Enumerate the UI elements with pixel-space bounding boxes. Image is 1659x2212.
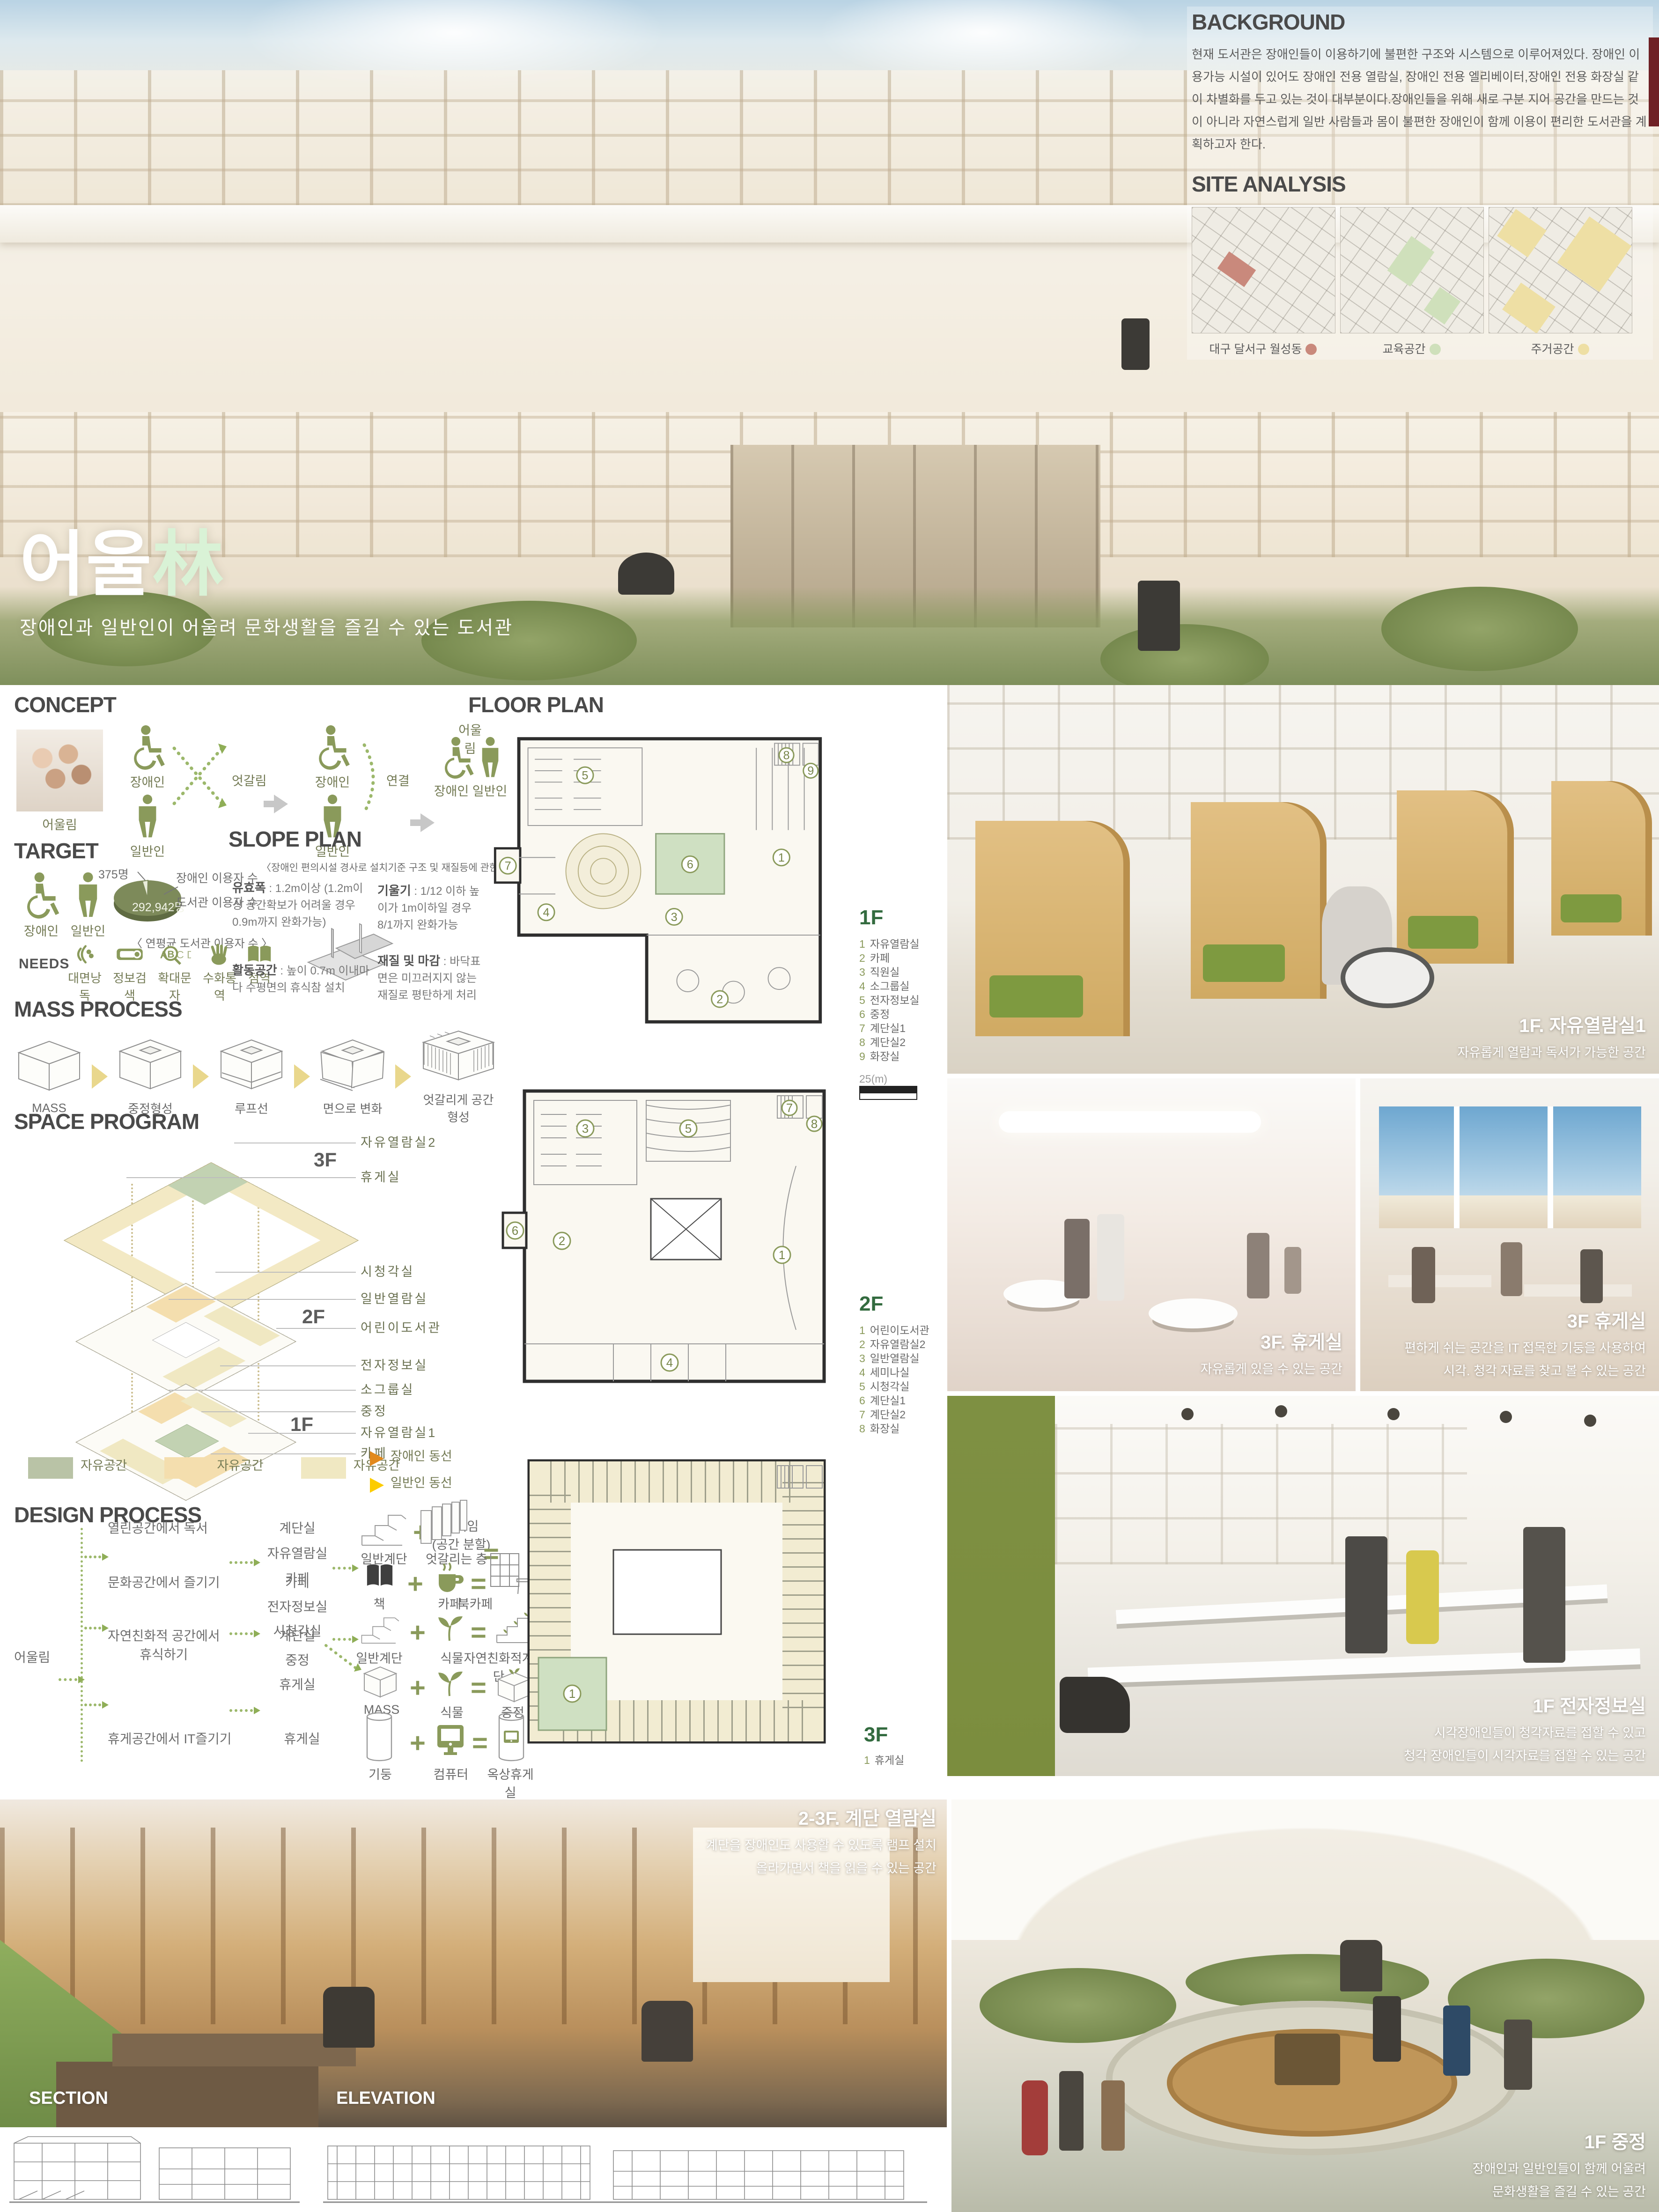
ceiling-light-slot [999,1111,1261,1133]
scale-label: 25(m) [859,1072,920,1086]
room-patch [163,1347,246,1391]
plant-icon [435,1670,465,1698]
svg-text:8: 8 [811,1117,818,1131]
wooden-booth [975,821,1130,1036]
floor-plan-heading: FLOOR PLAN [468,692,604,717]
person-silhouette [1345,1536,1387,1653]
space-legend-row: 자유공간 자유공간 자유공간 [28,1455,400,1479]
person-red [1022,2080,1048,2155]
mass-step: 중정형성 [115,1036,185,1117]
room-patch [181,1393,247,1428]
round-table [1149,1298,1238,1328]
activity-two-line: 자연친화적 공간에서휴식하기 [108,1626,220,1663]
render-stair-reading-room: 2-3F. 계단 열람실 계단을 장애인도 사용할 수 있도록 램프 설치 올라… [0,1799,947,2127]
need-info-search: 정보검색 [108,942,151,1003]
coffee-cup-icon [433,1561,465,1592]
green-swatch [28,1457,73,1479]
page-title: 어울林 [20,529,513,600]
floor2-legend: 2F 1어린이도서관 2자유열람실2 3일반열람실 4세미나실 5시청각실 6계… [859,1292,929,1436]
floor1-plan: 1 2 3 4 5 6 7 8 9 [482,716,852,1044]
legend-item: 8화장실 [859,1422,929,1436]
section-label: SECTION [29,2088,108,2109]
wheelchair-icon [311,725,354,770]
bookshelf-wall [1055,1424,1467,1564]
group-photo [16,730,103,811]
legend-item: 2자유열람실2 [859,1337,929,1351]
target-section: TARGET 장애인 일반인 375명 292,942명 장애인 이용자 수 도… [14,838,234,993]
track-light [1387,1408,1400,1420]
site-map-location: 대구 달서구 월성동 [1192,207,1335,357]
horizon-band [1379,1195,1641,1228]
staggered-shelf-icon [419,1499,475,1551]
map-image [1192,207,1335,333]
floor2-tag: 2F [859,1292,929,1316]
wheelchair-user-silhouette [618,553,674,595]
person-yellow-jacket [1406,1550,1439,1644]
slope-plan-section: SLOPE PLAN 〈장애인 편의시설 경사로 설치기준 구조 및 재질등에 … [229,826,484,995]
legend-item: 2카페 [859,951,920,965]
person-silhouette [1101,2080,1125,2151]
target-disabled: 장애인 [18,872,65,939]
site-patch [1217,251,1256,287]
connect-arc-icon [361,741,383,816]
person-silhouette [1059,2071,1084,2151]
table [1524,1284,1632,1297]
isometric-floor1 [75,1384,296,1501]
design-process-section: DESIGN PROCESS 어울림 열린공간에서 독서 계단실 자유열람실 카… [14,1502,482,1792]
window-mullion [1454,1106,1460,1228]
mass-planes-icon [317,1036,388,1092]
render-caption: 2-3F. 계단 열람실 계단을 장애인도 사용할 수 있도록 램프 설치 올라… [706,1803,936,1876]
dotted-arrow [59,1678,77,1684]
flow-legend: 장애인 동선 일반인 동선 [370,1446,452,1493]
background-body: 현재 도서관은 장애인들이 이용하기에 불편한 구조와 시스템으로 이루어져있다… [1192,43,1648,155]
svg-text:2: 2 [559,1234,565,1248]
dotted-arrow [84,1627,101,1632]
hero-render: 어울林 장애인과 일반인이 어울려 문화생활을 즐길 수 있는 도서관 BACK… [0,0,1659,685]
legend-item: 9화장실 [859,1049,920,1063]
legend-item: 4세미나실 [859,1365,929,1379]
stage-structure [1275,2034,1340,2085]
speech-icon [73,942,97,966]
flow-disabled: 장애인 동선 [370,1446,452,1466]
disabled-label: 장애인 [119,772,176,790]
render-caption: 1F. 자유열람실1 자유롭게 열람과 독서가 가능한 공간 [1457,1010,1646,1061]
stepped-platform [112,2034,356,2066]
needs-label: NEEDS [19,956,69,972]
concept-section: CONCEPT 어울림 장애인 일반인 엇갈림 장애인 일반인 연결 [14,692,482,847]
map-caption: 주거공간 [1489,340,1631,357]
map-image [1340,207,1484,333]
design-root-label: 어울림 [14,1647,50,1666]
title-korean: 어울 [20,525,153,605]
project-subtitle: 장애인과 일반인이 어울려 문화생활을 즐길 수 있는 도서관 [20,612,513,640]
render-caption: 3F 휴게실 편하게 쉬는 공간을 IT 접목한 기둥을 사용하여 시각. 청각… [1404,1306,1646,1379]
curved-building-wall [951,1799,1659,1940]
floor1-legend: 1F 1자유열람실 2카페 3직원실 4소그룹실 5전자정보실 6중정 7계단실… [859,906,920,1093]
legend-item: 1어린이도서관 [859,1323,929,1337]
legend-item: 6계단실1 [859,1394,929,1408]
track-light [1584,1415,1596,1427]
spaces-column: 계단실 중정 휴게실 [267,1626,328,1693]
svg-text:6: 6 [512,1224,518,1238]
svg-text:3: 3 [671,911,678,924]
mass-cube-icon [361,1665,399,1699]
render-digital-info-room: 1F 전자정보실 시각장애인들이 청각자료를 접할 수 있고 청각 장애인들이 … [947,1396,1659,1776]
svg-text:1: 1 [778,851,785,864]
legend-item: 자유공간 [28,1455,127,1479]
window-mullion [1548,1106,1553,1228]
tan-swatch [164,1457,209,1479]
svg-text:B: B [167,949,174,960]
need-reading-aloud: 대면낭독 [63,942,106,1003]
render-lounge-window: 3F 휴게실 편하게 쉬는 공간을 IT 접목한 기둥을 사용하여 시각. 청각… [1360,1078,1659,1391]
project-title-block: 어울林 장애인과 일반인이 어울려 문화생활을 즐길 수 있는 도서관 [20,529,513,640]
child-silhouette [1284,1247,1301,1294]
site-patch [1502,283,1556,333]
elevation-drawing [323,2134,927,2206]
svg-text:C D: C D [176,949,191,961]
search-bar-icon [115,942,145,966]
arrow-right-icon [193,1064,209,1089]
svg-text:1: 1 [569,1687,575,1701]
wooden-booth [1397,790,1514,964]
arrow-right-icon [395,1064,411,1089]
courtyard-patch [155,1424,219,1458]
legend-item: 6중정 [859,1007,920,1021]
drawings-strip [0,2127,947,2212]
background-heading: BACKGROUND [1192,9,1648,35]
background-panel: BACKGROUND 현재 도서관은 장애인들이 이용하기에 불편한 구조와 시… [1187,7,1653,360]
legend-dot [1578,344,1589,355]
design-process-heading: DESIGN PROCESS [14,1502,482,1527]
svg-text:5: 5 [685,1121,692,1135]
render-courtyard: 1F 중정 장애인과 일반인들이 함께 어울려 문화생활을 즐길 수 있는 공간 [951,1799,1659,2212]
arrow-right-icon [274,795,288,813]
bush [1381,587,1578,671]
scale-bar [859,1086,917,1093]
svg-text:9: 9 [807,765,814,778]
svg-text:8: 8 [783,749,790,762]
floor1-tag: 1F [290,1413,313,1436]
mass-step: 면으로 변화 [317,1036,388,1117]
cross-label: 엇갈림 [232,771,267,789]
person-silhouette [1504,2020,1532,2090]
plant-icon [435,1615,465,1643]
person-silhouette [1373,1996,1401,2062]
legend-item: 7계단실2 [859,1408,929,1422]
mass-roofline-icon [216,1036,287,1092]
flow-general: 일반인 동선 [370,1473,452,1493]
person-silhouette [1121,318,1150,370]
pale-swatch [301,1457,346,1479]
legend-item: 3일반열람실 [859,1351,929,1365]
legend-item: 8계단실2 [859,1035,920,1049]
floor1-tag: 1F [859,906,920,929]
site-map-education: 교육공간 [1340,207,1483,357]
wheelchair-user [1340,1940,1382,1991]
legend-item: 4소그룹실 [859,979,920,993]
render-lounge-room: 3F. 휴게실 자유롭게 있을 수 있는 공간 [947,1078,1356,1391]
space-program-heading: SPACE PROGRAM [14,1109,482,1134]
butterfly-chair [1060,1677,1130,1733]
title-hanja: 林 [153,525,225,605]
track-light [1181,1408,1194,1420]
arrow-right-icon [92,1064,108,1089]
pie-small-value: 375명 [98,865,129,882]
slope-spec-activity: 활동공간 : 높이 0.7m 이내마다 수평면의 휴식참 설치 [232,961,373,996]
map-image [1489,207,1632,333]
presentation-board: 어울林 장애인과 일반인이 어울려 문화생활을 즐길 수 있는 도서관 BACK… [0,0,1659,2212]
floor3-plan: 1 [496,1442,857,1770]
mass-courtyard-icon [115,1036,185,1092]
svg-text:7: 7 [786,1101,793,1115]
svg-text:4: 4 [666,1356,673,1370]
svg-text:2: 2 [716,993,723,1006]
floor2-plan: 1 2 3 4 5 6 7 8 [496,1072,857,1409]
legend-item: 5전자정보실 [859,993,920,1007]
merge-label: 어울림 [458,720,482,757]
svg-text:4: 4 [543,906,549,919]
need-magnified-text: AC DB 확대문자 [153,942,196,1003]
wheelchair-user [641,2001,693,2062]
mass-process-section: MASS PROCESS MASS 중정형성 루프선 면으로 변화 [14,996,482,1104]
computer-icon [435,1722,467,1757]
svg-text:5: 5 [582,769,588,782]
floor3-tag: 3F [864,1723,904,1747]
site-patch [1387,236,1435,287]
process-trunk-line [81,1528,83,1762]
slope-spec-width: 유효폭 : 1.2m이상 (1.2m이상 공간확보가 어려울 경우 0.9m까지… [232,879,373,931]
dotted-arrow [229,1709,253,1715]
site-analysis-heading: SITE ANALYSIS [1192,171,1648,197]
person-silhouette [1523,1527,1565,1663]
mass-step: 루프선 [216,1036,287,1117]
elevation-label: ELEVATION [336,2088,435,2109]
person-silhouette [1501,1242,1522,1296]
track-light [1275,1405,1287,1417]
map-caption: 교육공간 [1340,340,1483,357]
room-patch [204,1306,280,1346]
orange-arrow-icon [370,1451,384,1466]
magnifier-letters-icon: AC DB [158,942,191,966]
isometric-floor2 [75,1283,296,1400]
wooden-booth [1191,802,1327,999]
floor3-legend: 3F 1휴게실 [864,1723,904,1767]
site-analysis-maps: 대구 달서구 월성동 교육공간 주거공간 [1192,207,1648,357]
green-accent-wall [947,1396,1055,1776]
svg-text:3: 3 [582,1121,589,1135]
target-heading: TARGET [14,838,234,863]
dotted-arrow [229,1561,253,1567]
table [1388,1275,1491,1287]
render-caption: 1F 전자정보실 시각장애인들이 청각자료를 접할 수 있고 청각 장애인들이 … [1404,1691,1646,1764]
render-caption: 3F. 휴게실 자유롭게 있을 수 있는 공간 [1201,1327,1342,1377]
space-program-section: SPACE PROGRAM 3F 2F 1F 자유열람실2 휴게실 시청각실 [14,1109,482,1493]
concept-heading: CONCEPT [14,692,482,717]
render-free-reading-room: 1F. 자유열람실1 자유롭게 열람과 독서가 가능한 공간 [947,685,1659,1074]
dotted-arrow [229,1632,253,1638]
slope-plan-heading: SLOPE PLAN [229,826,484,852]
map-caption: 대구 달서구 월성동 [1192,340,1335,357]
track-light [1500,1411,1512,1423]
person-silhouette [1412,1247,1435,1303]
wooden-booth [1551,781,1652,936]
wheelchair-wheel [1341,947,1434,1008]
wheelchair-icon [20,872,63,919]
render-caption: 1F 중정 장애인과 일반인들이 함께 어울려 문화생활을 즐길 수 있는 공간 [1473,2127,1646,2200]
lounge-patch [168,1163,248,1205]
legend-item: 5시청각실 [859,1379,929,1394]
dotted-arrow [332,1567,351,1572]
site-patch [1557,217,1632,292]
crossing-arrows-icon [170,739,230,814]
arrow-right-icon [294,1064,310,1089]
slope-spec-gradient: 기울기 : 1/12 이하 높이가 1m이하일 경우 8/1까지 완화가능 [377,882,483,934]
wheelchair-icon [126,725,169,770]
floor3-tag: 3F [314,1149,337,1171]
bush-ring [1448,1959,1644,2038]
person-silhouette [1580,1249,1603,1303]
legend-dot [1305,344,1317,355]
person-blue [1443,2006,1470,2076]
mass-step: MASS [14,1038,84,1115]
person-icon [133,794,162,839]
legend-item: 자유공간 [164,1455,263,1479]
person-silhouette [1097,1214,1124,1301]
dotted-arrow [84,1556,101,1561]
legend-item: 1휴게실 [864,1753,904,1767]
connect-label: 연결 [386,771,410,789]
site-patch [1424,287,1461,324]
mass-cube-icon [14,1038,84,1094]
red-accent-strip [1649,37,1659,126]
svg-text:7: 7 [505,860,511,873]
svg-text:6: 6 [687,858,693,871]
photographer-silhouette [1138,581,1180,651]
legend-item: 3직원실 [859,965,920,979]
legend-item: 7계단실1 [859,1021,920,1035]
disabled-label: 장애인 [304,772,361,790]
wheelchair-user [323,1987,375,2048]
svg-text:1: 1 [779,1248,785,1262]
stairs-icon [358,1611,400,1646]
section-drawing [9,2134,300,2206]
floor2-tag: 2F [302,1305,325,1328]
site-patch [1497,209,1547,258]
isometric-floor3 [65,1163,357,1318]
legend-item: 1자유열람실 [859,937,920,951]
person-silhouette [1064,1219,1090,1298]
mass-process-heading: MASS PROCESS [14,996,482,1022]
dotted-arrow [84,1703,101,1709]
photo-caption: 어울림 [16,815,103,833]
book-icon [364,1562,395,1591]
legend-dot [1430,344,1441,355]
yellow-arrow-icon [370,1478,384,1493]
person-silhouette [1247,1233,1269,1298]
column-icon [364,1711,394,1762]
site-map-residential: 주거공간 [1489,207,1631,357]
stairs-icon [358,1507,407,1549]
